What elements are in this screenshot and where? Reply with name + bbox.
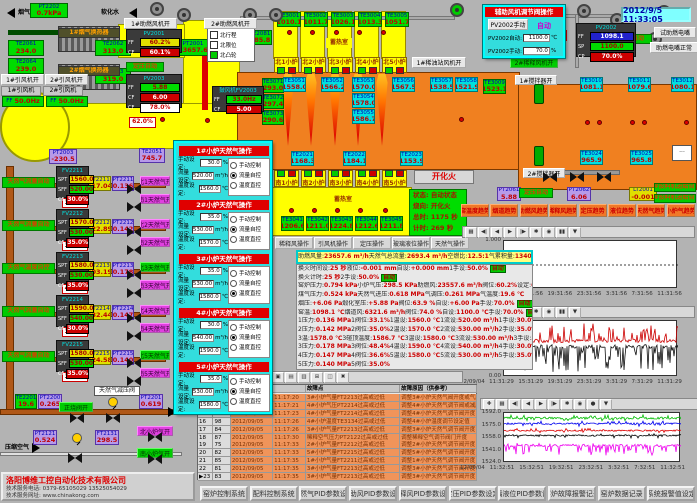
radio-label: 温度直控 [239,235,261,243]
popup-field-row: 流量设定:530.00m³/h [178,279,228,289]
box-PT2121: PT21210.524 [33,430,57,445]
trend-button-定压趋势[interactable]: 定压趋势 [579,204,607,217]
legend-label: 北凸轮 [220,51,237,59]
field-input[interactable]: 530.00 [192,226,214,234]
toolbar-icon[interactable]: ◉ [543,227,555,238]
info-seg: 1570.0 ℃ [408,327,441,333]
panel-row-label: CF [58,197,64,203]
trend-button-天然气趋势[interactable]: 天然气趋势 [637,204,665,217]
button-2#助燃风机开[interactable]: 2#助燃风机开 [204,18,257,29]
gauge-icon [108,397,118,407]
bottom-button-系统报警值设定[interactable]: 系统报警值设定 [647,486,695,501]
toolbar-icon[interactable]: ▮▮ [556,307,568,318]
toolbar-icon[interactable]: ✱ [561,399,573,410]
bottom-button-辅助风PID参数设定[interactable]: 辅助风PID参数设定 [349,486,397,501]
tag-value: 23657.6 [178,47,208,54]
aux-popup-title: 辅助风机调节阀操作 [485,7,563,17]
info-seg: 1586.7 ℃ [372,336,405,342]
tag-value: 313.0 [103,48,124,55]
info-seg: 4阀位: [351,353,369,359]
label-开化火: 开化火 [414,170,474,184]
sensor-dot-icon [630,120,635,125]
alarm-table-row[interactable]: ▶23832012/09/0511:17:353#小炉气量FT2213过高或过低… [198,473,477,481]
op-button-天然气操作[interactable]: 天然气操作 [431,237,469,249]
panel-row-value: 5.00 [226,105,262,114]
burner-南1小炉: 南1小炉 [274,170,299,187]
alarm-table-row[interactable]: 22812012/09/0511:17:353#小炉气量FT2213过高或过低调… [198,465,477,473]
radio-手动控制[interactable]: 手动控制 [230,377,268,385]
radio-手动控制[interactable]: 手动控制 [230,323,268,331]
panel-title: 鼓风机FV2003 [214,88,262,94]
field-unit: ℃ [222,186,228,192]
toolbar-icon[interactable]: ◀ [491,227,503,238]
popup-field-row: 温度设定:1580.0℃ [178,400,228,410]
pv2002-auto-field[interactable]: 1100.0 [523,34,550,42]
label-1#引风机: 1#引风机 [1,86,41,96]
button-1#稀油站风机开[interactable]: 1#稀油站风机开 [412,57,466,68]
info-seg: 0.147 MPa [316,353,351,359]
radio-circle-icon[interactable] [230,236,237,243]
field-input[interactable]: 35.0 [200,375,222,383]
trend-button-窑温度趋势[interactable]: 窑温度趋势 [461,204,489,217]
popup-radio-panel: 手动控制流量自控温度直控 [228,266,270,304]
panel-row-label: SFF [58,273,67,279]
pv2002-manual-field[interactable]: 70.0 [523,47,550,55]
button-1#引风机开[interactable]: 1#引风机开 [1,74,44,85]
info-seg: 阀位: [482,283,496,289]
info-seg: 530.00 m³/h [458,353,499,359]
tag-value: 234.0 [16,48,37,55]
radio-手动控制[interactable]: 手动控制 [230,215,268,223]
box-FF: FF50.0Hz [46,96,88,107]
pv2002-manual-unit: % [551,48,556,54]
toolbar-icon[interactable]: ▼ [600,399,612,410]
button-北1天然气开[interactable]: 北1天然气开 [140,176,170,186]
y-axis-tick: 1575.0 [471,422,501,429]
box-PT2061: PT20615.88 [497,187,521,201]
label-定压自动: 定压自动 [519,188,553,198]
toolbar-icon[interactable]: ▶ [535,399,547,410]
alarm-table-row[interactable]: 18872012/09/0511:17:30稀释空气压力PT2122过高或过低调… [198,434,477,442]
trend-button-液位趋势[interactable]: 液位趋势 [608,204,636,217]
radio-温度直控[interactable]: 温度直控 [230,289,268,297]
info-seg: 0.140 MPa [316,362,351,368]
info-seg: 74.0 % [419,310,442,316]
box-TE3072: TE3072297.4 [262,94,284,109]
field-input[interactable]: 1590.0 [199,347,221,355]
tag-label: FF [6,99,12,105]
alarm-cell: 1#小炉气量FT2211过高或过低 [306,457,400,465]
info-row: 3压力:0.178 MPa 3阀位:48.4% 4温设:1590.0 ℃ 4流设… [298,343,532,351]
radio-流量自控[interactable]: 流量自控 [230,387,268,395]
toolbar-icon[interactable]: ▦ [496,399,508,410]
info-seg: 35.0% [516,353,532,359]
radio-circle-icon[interactable] [230,226,237,233]
op-button-定压操作[interactable]: 定压操作 [353,237,391,249]
radio-label: 流量自控 [239,387,261,395]
bottom-button-稀释风PID参数设定[interactable]: 稀释风PID参数设定 [399,486,447,501]
toolbar-icon[interactable]: ✱ [530,227,542,238]
panel-row-value: 1560.0 [69,175,94,184]
info-seg: 4流设: [440,344,458,350]
info-seg: 5手设: [499,353,517,359]
button-北3天然气开[interactable]: 北3天然气开 [140,262,170,272]
info-seg: 0.142 MPa [316,327,351,333]
label-天然气减压阀: 天然气减压阀 [94,386,140,396]
tag-value: 293.0 [263,85,284,92]
burner-北1小炉: 北1小炉 [274,57,299,73]
info-row: 窑炉压力:0.794 kPa 小炉气压:298.5 KPa 助燃风:23557.… [298,282,532,290]
toolbar-icon[interactable]: ▮▮ [556,227,568,238]
toolbar-icon[interactable]: ▼ [569,307,581,318]
popup-field-row: 流量设定:530.00m³/h [178,387,228,397]
trend-button-小炉气趋势[interactable]: 小炉气趋势 [667,204,695,217]
field-input[interactable]: 30.0 [200,159,222,167]
panel-FV2212: FV2212SPT1570.0SFF530.00CF35.0% [56,209,89,241]
field-unit: % [223,160,228,166]
field-input[interactable]: 540.00 [192,334,214,342]
tag-value: -230.5 [51,156,74,163]
radio-circle-icon[interactable] [230,270,237,277]
gas-main-vertical [6,166,14,413]
alarm-header-cell [273,385,306,393]
x-axis-labels: 12/09/0411:31:2915:31:2919:31:2923:31:29… [460,379,682,387]
info-seg: 换火计时: [298,275,324,281]
field-label: 温度设定: [178,343,198,359]
x-axis-label: 7:31:29 [632,379,653,387]
tag-value: 1212.6 [355,223,378,230]
toolbar-icon[interactable]: ◀| [478,227,490,238]
button-南2天然气开[interactable]: 南2天然气开 [140,237,170,247]
alarm-table-row[interactable]: 20822012/09/0511:17:335#小炉气量FT2215过高或过低调… [198,449,477,457]
op-button-稀释风操作[interactable]: 稀释风操作 [275,237,313,249]
radio-circle-icon[interactable] [230,334,237,341]
field-unit: m³/h [215,281,228,287]
radio-circle-icon[interactable] [230,216,237,223]
alarm-cell: 2#小炉气量FT2212过高或过低 [306,441,400,449]
chart-窑温度趋势 [503,412,680,462]
field-label: 温度设定: [178,289,198,305]
label-天然气流量自动: 天然气流量自动 [2,220,55,231]
x-axis-label: 3:31:56 [606,291,627,299]
radio-手动控制[interactable]: 手动控制 [230,161,268,169]
sensor-dot-icon [310,30,315,35]
box-TE3012: TE30121080.1 [671,77,694,92]
panel-title: PV2002 [578,25,634,31]
bottom-button-玻璃液位PID参数设定[interactable]: 玻璃液位PID参数设定 [498,486,546,501]
tag-value: 5.88 [501,194,517,201]
field-input[interactable]: 1580.0 [199,401,221,409]
radio-label: 流量自控 [239,225,261,233]
toolbar-icon[interactable]: ▼ [569,227,581,238]
toolbar-icon[interactable]: ◀| [509,399,521,410]
info-seg: 25 秒 [330,266,346,272]
field-input[interactable]: 1560.0 [199,185,221,193]
trend-button-烟道趋势[interactable]: 烟道趋势 [490,204,518,217]
info-seg: 0.178 MPa [316,344,351,350]
button-北2天然气开[interactable]: 北2天然气开 [140,219,170,229]
valve-icon [127,222,141,232]
legend-square-icon [210,51,218,59]
label-1#烟气换热器: 1#烟气换热器 [58,28,120,38]
bottom-button-天然气PID参数设定[interactable]: 天然气PID参数设定 [299,486,347,501]
field-unit: ℃ [222,294,228,300]
info-seg: 1手设: [499,318,517,324]
radio-label: 手动控制 [239,269,261,277]
steam-pipe [8,30,60,35]
aux-fan-valve-popup: 辅助风机调节阀操作 PV2002手动 自动 PV2002自动: 1100.0 ℃… [483,5,565,58]
panel-PV2002: PV2002FF1098.1SP1100.0CP70.0% [576,23,636,57]
info-seg: 298.5 KPa [383,283,417,289]
info-row: 煤气压力:0.524 kPa 天然气进压:0.618 MPa 气调压:0.261… [298,291,532,299]
field-input[interactable]: 30.0 [200,321,222,329]
button-北4天然气开[interactable]: 北4天然气开 [140,305,170,315]
button-南3天然气开[interactable]: 南3天然气开 [140,280,170,290]
sensor-dot-icon [642,120,647,125]
alarm-table-row[interactable]: 19752012/09/0511:17:332#小炉气量FT2212过高或过低调… [198,441,477,449]
field-input[interactable]: 520.00 [192,172,214,180]
radio-circle-icon[interactable] [230,388,237,395]
radio-circle-icon[interactable] [230,378,237,385]
field-input[interactable]: 35.0 [200,267,222,275]
info-seg: 1098.1 ℃ [312,310,345,316]
sensor-dot-icon [335,208,340,213]
alarm-cell: 调整4#小炉天然气调节阀或减压阀 [400,402,477,410]
radio-温度直控[interactable]: 温度直控 [230,343,268,351]
valve-icon [127,283,141,293]
burner-南5小炉: 南5小炉 [382,170,407,187]
tag-value: 1013.3 [358,19,382,26]
label-1#投料机进给自动: 1#投料机进给自动 [654,183,696,192]
radio-label: 流量自控 [239,333,261,341]
toolbar-icon[interactable]: ◀ [522,399,534,410]
button-1#助燃风机开[interactable]: 1#助燃风机开 [124,18,177,29]
info-seg: 19.6 ℃ [500,292,524,298]
alarm-cell: 81 [213,465,230,473]
button-南4天然气开[interactable]: 南4天然气开 [140,323,170,333]
radio-手动控制[interactable]: 手动控制 [230,269,268,277]
info-seg: 30.0% [516,318,532,324]
panel-row-value: 35.0% [66,238,89,247]
box-TE3052: TE30521566.2 [321,77,344,92]
info-seg: 1590.0 ℃ [408,344,441,350]
panel-row-label: CF [128,95,138,101]
info-seg: 4手设: [499,344,517,350]
radio-温度直控[interactable]: 温度直控 [230,235,268,243]
panel-row-label: FF [128,40,138,46]
bottom-button-窑炉控制系统[interactable]: 窑炉控制系统 [200,486,248,501]
field-input[interactable]: 1580.0 [199,293,221,301]
fan-icon [577,4,591,18]
toolbar-icon[interactable]: |▶ [517,227,529,238]
toolbar-icon[interactable]: ▤ [285,372,297,383]
burner-南3小炉: 南3小炉 [328,170,353,187]
toolbar-icon[interactable]: ✖ [337,372,349,383]
label-···: ··· [672,145,692,161]
tag-value: 6.06 [571,194,587,201]
info-seg: 手设: [489,310,503,316]
burner-label: 南5小炉 [383,178,405,187]
info-seg: 自设: [435,301,449,307]
panel-row-label: SPT [58,177,67,183]
pv2002-manual-button[interactable]: PV2002手动 [488,19,528,30]
panel-row-value: 6.00 [140,93,180,102]
radio-circle-icon[interactable] [230,290,237,297]
alarm-cell: 3#小炉气量FT2213过高或过低 [306,426,400,434]
radio-circle-icon[interactable] [230,344,237,351]
info-seg: 设定: [517,283,531,289]
field-unit: ℃ [222,240,228,246]
info-seg: 1温设: [390,318,408,324]
button-南1天然气开[interactable]: 南1天然气开 [140,194,170,204]
info-row: 换火计时:25 秒 2手设:50.0%自动 [298,274,532,282]
sensor-dot-icon [597,120,602,125]
toolbar-icon[interactable]: ▶ [504,227,516,238]
company-web: 技术服务网址: www.chinakong.com [6,493,190,500]
tag-value: 1558.0 [283,84,306,91]
label-2#投料机进给自动: 2#投料机进给自动 [654,194,696,203]
alarm-cell: 调整4#小炉天然气调节阀开度 [400,410,477,418]
bottom-button-窑炉故障报警记录[interactable]: 窑炉故障报警记录 [548,486,596,501]
info-seg: 自设: [397,266,411,272]
tag-value: 0.7kPa [37,10,62,17]
sensor-dot-icon [585,120,590,125]
button-2#引风机开[interactable]: 2#引风机开 [45,74,88,85]
fan-icon [450,3,464,17]
info-row: 1压力:0.136 MPa 1阀位:33.1% 1温设:1560.0 ℃ 1流设… [298,317,532,325]
alarm-table-row[interactable]: 21852012/09/0511:17:351#小炉气量FT2211过高或过低调… [198,457,477,465]
x-axis-label: 11:31:56 [657,291,682,299]
alarm-cell: 11:17:33 [273,441,306,449]
toolbar-icon[interactable]: ▣ [272,372,284,383]
radio-label: 手动控制 [239,377,261,385]
radio-流量自控[interactable]: 流量自控 [230,279,268,287]
alarm-cell: 11:17:20 [273,394,306,402]
button-试助燃电嘴[interactable]: 试助燃电嘴 [654,27,696,38]
box-TE3073: TE3073290.6 [262,110,284,125]
info-seg: 25 秒 [324,275,340,281]
chart-toolbar: ✚▦◀|◀▶|▶✱◉●▼ [480,398,697,410]
alarm-cell: 75 [213,441,230,449]
box-TE3055: TE30551586.7 [352,109,375,124]
info-row: 换火时间设:25 秒 液位:-0.001 mm 自设:+0.000 mm 1手设… [298,265,532,273]
toolbar-icon[interactable]: ◉ [574,399,586,410]
alarm-cell: 11:17:35 [273,465,306,473]
info-seg: 0.261 MPa [445,292,480,298]
x-axis-label: 19:32:51 [549,465,574,473]
field-input[interactable]: 530.00 [192,388,214,396]
tag-value: 0.524 [35,437,56,444]
button-助燃电嘴正常[interactable]: 助燃电嘴正常 [650,42,697,53]
bottom-button-配料控制系统[interactable]: 配料控制系统 [250,486,298,501]
toolbar-icon[interactable]: |▶ [548,399,560,410]
burner-label: 南3小炉 [329,178,351,187]
op-button-玻璃液位操作[interactable]: 玻璃液位操作 [392,237,430,249]
toolbar-icon[interactable]: ▦ [465,227,477,238]
box-LT2001: LT2001-0.001 [629,187,657,201]
valve-icon [127,179,141,189]
alarm-table-row[interactable]: 17842012/09/0511:17:263#小炉气量FT2213过高或过低调… [198,426,477,434]
button-南5天然气开[interactable]: 南5天然气开 [140,368,170,378]
toolbar-icon[interactable]: ◫ [324,372,336,383]
toolbar-icon[interactable]: ⊞ [311,372,323,383]
field-input[interactable]: 530.00 [192,280,214,288]
info-row: 3温:1578.0 ℃ 3碹顶温度:1586.7 ℃ 3温设:1580.0 ℃ … [298,335,532,343]
field-input[interactable]: 35.0 [200,213,222,221]
valve-icon [127,353,141,363]
radio-circle-icon[interactable] [230,324,237,331]
popup-field-row: 手动设定:30.0% [178,320,228,330]
radio-温度直控[interactable]: 温度直控 [230,181,268,189]
field-input[interactable]: 1570.0 [199,239,221,247]
box-TE2051: TE2051745.7 [139,148,165,163]
button-2#稀释风机开[interactable]: 2#稀释风机开 [510,57,558,68]
radio-circle-icon[interactable] [230,280,237,287]
info-seg: 窑温: [298,310,312,316]
legend-square-icon [210,31,218,39]
info-seg: 50.0% [358,275,379,281]
field-label: 温度设定: [178,397,198,413]
trend-button-稀释风趋势[interactable]: 稀释风趋势 [549,204,577,217]
info-seg: 2693.4 m³/h [407,254,448,260]
alarm-cell: 调整2#小炉天然气调节阀开度 [400,441,477,449]
info-seg: 2流设: [440,327,458,333]
op-button-引风机操作[interactable]: 引风机操作 [314,237,352,249]
info-seg: 液位: [346,266,360,272]
valve-icon [127,240,141,250]
radio-circle-icon[interactable] [230,162,237,169]
radio-流量自控[interactable]: 流量自控 [230,225,268,233]
alarm-cell: 调整1#小炉天然气调节阀开度 [400,457,477,465]
panel-row-label: SFF [58,316,67,322]
fan-icon [269,8,283,22]
box-TE3042: TE30421211.0 [306,216,329,231]
bottom-button-定压PID参数设定[interactable]: 定压PID参数设定 [449,486,497,501]
radio-circle-icon[interactable] [230,398,237,405]
info-seg: 35.0% [516,327,532,333]
radio-温度直控[interactable]: 温度直控 [230,397,268,405]
info-seg: +5.88 Pa [368,301,398,307]
popup-radio-panel: 手动控制流量自控温度直控 [228,212,270,250]
tag-value: 1051.7 [385,19,409,26]
radio-circle-icon[interactable] [230,172,237,179]
alarm-table-row[interactable]: 16982012/09/0511:17:264#小炉温度TE3134过高或过低调… [198,418,477,426]
radio-label: 温度直控 [239,343,261,351]
button-北5天然气开[interactable]: 北5天然气开 [140,350,170,360]
toolbar-icon[interactable]: ◉ [543,307,555,318]
toolbar-icon[interactable]: ▥ [298,372,310,383]
box-TE3058: TE30581521.9 [455,77,478,92]
radio-流量自控[interactable]: 流量自控 [230,171,268,179]
tag-value: 1578.0 [352,100,375,107]
toolbar-icon[interactable]: ● [587,399,599,410]
x-axis-label: 23:31:56 [577,291,602,299]
info-seg: 气温度: [480,292,500,298]
radio-circle-icon[interactable] [230,182,237,189]
x-axis-label: 11:32:51 [660,465,685,473]
info-seg: 天然气进压: [357,292,389,298]
trend-button-助燃风趋势[interactable]: 助燃风趋势 [520,204,548,217]
field-unit: m³/h [215,173,228,179]
bottom-button-窑炉数据记录[interactable]: 窑炉数据记录 [598,486,646,501]
alarm-header-cell: 故障点 [306,385,400,393]
panel-row-label: SP [578,44,588,50]
popup-field-row: 流量设定:530.00m³/h [178,225,228,235]
toolbar-icon[interactable]: ✚ [483,399,495,410]
panel-title: FV2212 [58,211,87,217]
radio-流量自控[interactable]: 流量自控 [230,333,268,341]
info-seg: 1580.0 ℃ [408,353,441,359]
